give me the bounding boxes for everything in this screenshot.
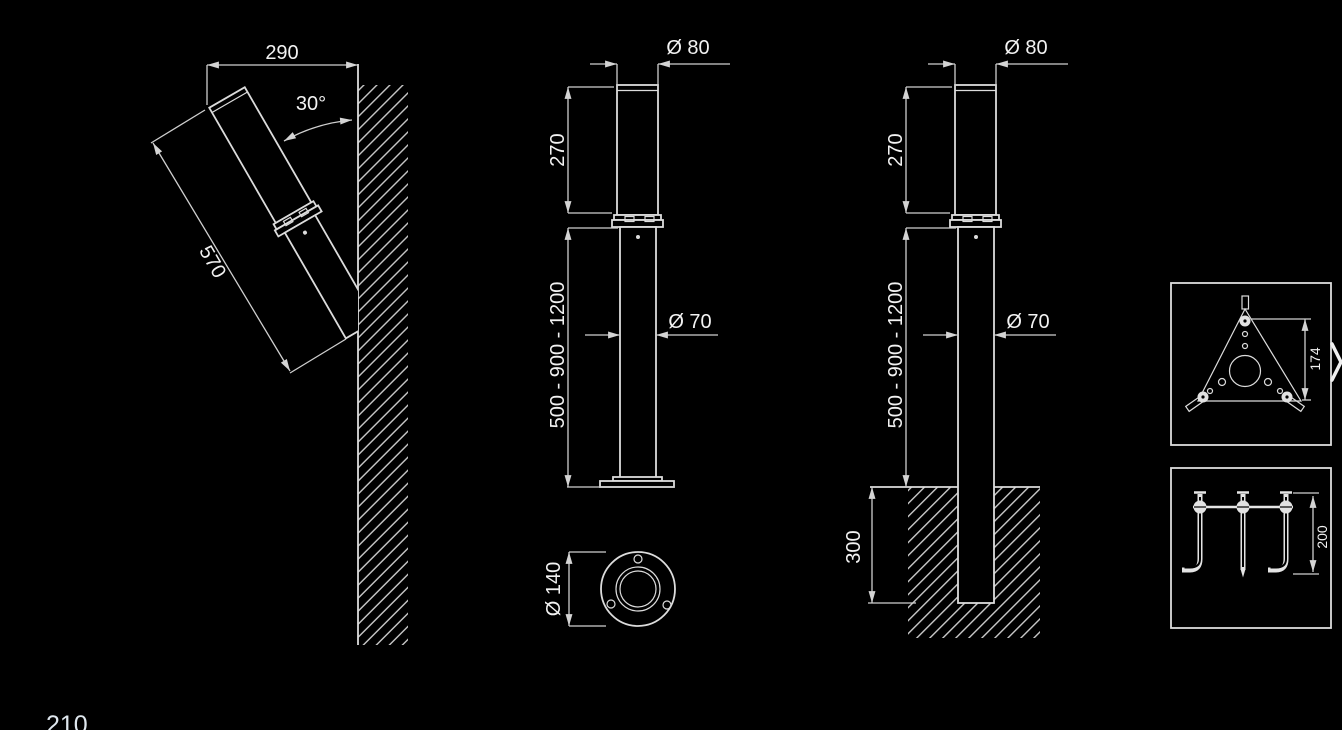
dim-label-pole-diameter: Ø 70 <box>1006 311 1049 333</box>
dim-label-anchor-length: 200 <box>1314 525 1330 549</box>
background <box>0 0 1342 730</box>
base-plate <box>600 481 674 487</box>
joint-adapter <box>612 220 663 227</box>
dim-label-head-diameter: Ø 80 <box>1004 37 1047 59</box>
drawing-page: 290 30° 570 Ø 80 <box>0 0 1342 730</box>
dim-label-head-height: 270 <box>885 133 907 166</box>
page-number: 210 <box>46 711 88 730</box>
pole-embedded <box>958 227 994 603</box>
lamp-head <box>617 85 658 215</box>
pole <box>620 227 656 479</box>
dim-label-base-diameter: Ø 140 <box>543 562 565 616</box>
wall-hatch <box>358 85 408 645</box>
dim-label-pole-diameter: Ø 70 <box>668 311 711 333</box>
dim-label-290: 290 <box>265 42 298 64</box>
dim-label-pole-height: 500 - 900 - 1200 <box>885 282 907 429</box>
pole-screw <box>974 235 978 239</box>
top-nut-center <box>1243 319 1246 322</box>
dim-label-head-height: 270 <box>547 133 569 166</box>
dim-label-head-diameter: Ø 80 <box>666 37 709 59</box>
lamp-head <box>955 85 996 215</box>
dim-label-pole-height: 500 - 900 - 1200 <box>547 282 569 429</box>
corner-nut-right-center <box>1285 395 1288 398</box>
joint-adapter <box>950 220 1001 227</box>
pole-screw <box>636 235 640 239</box>
dim-label-embed-depth: 300 <box>843 530 865 563</box>
corner-nut-left-center <box>1201 395 1204 398</box>
dim-label-plate-height: 174 <box>1307 347 1323 371</box>
technical-drawing-canvas: 290 30° 570 Ø 80 <box>0 0 1342 730</box>
dim-label-30deg: 30° <box>296 93 326 115</box>
